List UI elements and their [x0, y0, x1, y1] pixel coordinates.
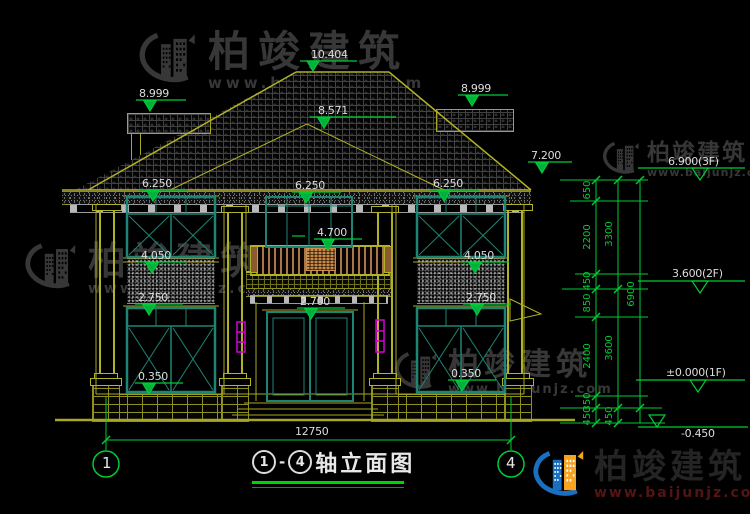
- level-label-floor2: 3.600(2F): [672, 268, 723, 279]
- railing-post-right: [384, 246, 392, 273]
- pedestal-outer-left: [92, 384, 120, 422]
- column-inner-right: [377, 212, 393, 378]
- title-text: 轴立面图: [315, 446, 415, 478]
- level-label-floor1: ±0.000(1F): [666, 367, 726, 378]
- drawing-title: 1 - 4 轴立面图: [252, 446, 415, 478]
- railing-post-left: [250, 246, 258, 273]
- level-label-balcony: 4.700: [317, 227, 347, 238]
- level-label-door-head: 2.700: [300, 296, 330, 307]
- level-label-2f-head-right: 6.250: [433, 178, 463, 189]
- entrance-door: [267, 312, 353, 401]
- axis-bubble-left-number: 1: [102, 456, 112, 471]
- level-label-2f-head-center: 6.250: [295, 180, 325, 191]
- pedestal-outer-right: [504, 384, 532, 422]
- overall-width-label: 12750: [295, 426, 329, 437]
- column-outer-right: [507, 210, 523, 378]
- company-logo-icon: [602, 136, 642, 184]
- eave-dentil-course: [70, 204, 524, 213]
- eave-fascia: [62, 191, 531, 205]
- dim-3600: 3600: [605, 335, 615, 360]
- company-logo-color: 柏竣建筑 www.baijunjz.com: [532, 446, 750, 504]
- level-label-parapet-right: 8.999: [461, 83, 491, 94]
- column-inner-left: [227, 212, 243, 378]
- capital-inner-left: [221, 206, 249, 213]
- entry-steps: [232, 403, 384, 415]
- logo-url: www.baijunjz.com: [594, 485, 750, 501]
- company-logo-icon: [138, 28, 200, 94]
- level-label-parapet-left: 8.999: [139, 88, 169, 99]
- level-label-1f-head-left: 2.750: [138, 292, 168, 303]
- axis-bubble-right-number: 4: [506, 456, 516, 471]
- accent-window-magenta: [237, 320, 384, 352]
- level-label-1f-head-right: 2.750: [466, 292, 496, 303]
- title-separator: -: [279, 453, 285, 471]
- dim-6900: 6900: [627, 281, 637, 306]
- dim-650: 650: [583, 180, 593, 199]
- level-label-2f-sill-left: 4.050: [141, 250, 171, 261]
- dim-3300: 3300: [605, 221, 615, 246]
- base-plate-inner-left: [219, 378, 251, 386]
- railing-center-panel: [306, 248, 336, 271]
- base-plate-inner-right: [369, 378, 401, 386]
- title-underline-thick: [252, 481, 404, 484]
- level-label-2f-sill-right: 4.050: [464, 250, 494, 261]
- level-label-2f-head-left: 6.250: [142, 178, 172, 189]
- capital-outer-left: [92, 204, 122, 211]
- dim-2200: 2200: [583, 224, 593, 249]
- company-logo-icon: [532, 446, 588, 504]
- title-underline-thin: [252, 487, 404, 488]
- dim-450c: 450: [605, 406, 615, 425]
- level-label-eave: 7.200: [531, 150, 561, 161]
- dim-850: 850: [583, 293, 593, 312]
- parapet-left-tiles: [127, 113, 211, 134]
- title-axis-end-bubble: 4: [288, 450, 312, 474]
- pedestal-inner-right: [371, 384, 399, 422]
- pedestal-inner-left: [221, 384, 249, 422]
- title-axis-start-bubble: 1: [252, 450, 276, 474]
- company-logo-icon: [394, 346, 440, 400]
- level-label-ridge: 10.404: [311, 49, 348, 60]
- column-outer-left: [99, 210, 115, 378]
- base-plate-outer-left: [90, 378, 122, 386]
- capital-outer-right: [503, 204, 533, 211]
- parapet-right-tiles: [436, 109, 514, 132]
- dim-450b: 450: [583, 406, 593, 425]
- level-label-1f-sill-right: 0.350: [451, 368, 481, 379]
- level-label-floor3: 6.900(3F): [668, 156, 719, 167]
- logo-company-name: 柏竣建筑: [594, 449, 750, 485]
- elevation-flags: [636, 168, 748, 427]
- base-plate-outer-right: [502, 378, 534, 386]
- level-label-1f-sill-left: 0.350: [138, 371, 168, 382]
- capital-inner-right: [371, 206, 399, 213]
- company-logo-icon: [24, 238, 80, 300]
- level-label-ground: -0.450: [681, 428, 715, 439]
- level-label-mid-ridge: 8.571: [318, 105, 348, 116]
- dim-2400: 2400: [583, 343, 593, 368]
- dim-450a: 450: [583, 271, 593, 290]
- elevation-drawing-canvas: 柏竣建筑 www.baijunjz.com 柏竣建筑 www.baijunjz.…: [0, 0, 750, 514]
